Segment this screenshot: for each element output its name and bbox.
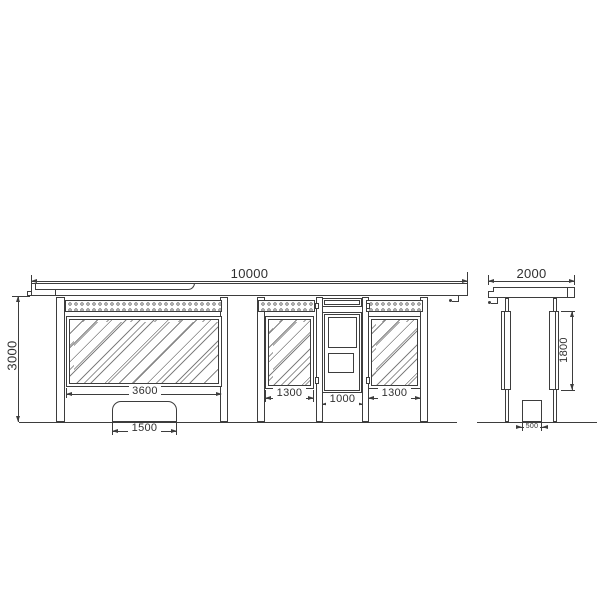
dim-label-left-window: 1300 (273, 388, 306, 400)
ground-line-front (19, 422, 457, 423)
roof-side-drain-dot (488, 301, 491, 304)
roof-side-left-step (488, 287, 494, 292)
dim-arrow (16, 296, 20, 302)
door-window-lower (328, 353, 354, 373)
dim-label-panel-height: 1800 (559, 332, 571, 368)
door-window-upper (328, 317, 357, 348)
dim-arrow (171, 429, 177, 433)
roof-side-inner-line (567, 287, 568, 298)
door-hinge-top-left (315, 303, 319, 309)
dim-arrow (542, 425, 548, 429)
roof-front-upper-band (35, 283, 195, 290)
dim-label-overall-width: 10000 (31, 267, 468, 281)
glass-panel-right (371, 319, 418, 386)
door-hinge-bottom-right (366, 377, 370, 384)
perforated-strip-main (65, 300, 222, 312)
dim-arrow (570, 384, 574, 390)
roof-side-drain-hook (491, 298, 498, 304)
side-panel-front-line (504, 311, 505, 390)
dim-label-main-window: 3600 (129, 386, 161, 398)
dim-label-overall-height: 3000 (6, 338, 19, 374)
dim-label-bench: 1500 (128, 423, 161, 435)
roof-front-drain-dot (449, 299, 452, 302)
dim-arrow (66, 392, 72, 396)
signage-board-inner (324, 300, 360, 305)
bench-front (112, 401, 177, 422)
dim-arrow (368, 396, 374, 400)
post-right-end (420, 297, 428, 422)
door-hinge-bottom-left (315, 377, 319, 384)
drawing-canvas: 10000 3000 3600 1500 (0, 0, 600, 600)
dim-arrow (516, 425, 522, 429)
dim-arrow (16, 416, 20, 422)
bench-side (522, 400, 542, 422)
dim-arrow (216, 392, 222, 396)
glass-panel-left (268, 319, 311, 386)
perforated-strip-left (258, 300, 315, 312)
dim-arrow (570, 311, 574, 317)
glass-panel-main (69, 319, 219, 384)
dim-arrow (265, 396, 271, 400)
dim-label-right-window: 1300 (378, 388, 411, 400)
roof-front-drain-hook (452, 296, 459, 302)
dim-arrow (308, 396, 314, 400)
roof-front-band-tick (55, 290, 56, 296)
side-panel-front (501, 311, 511, 390)
post-2 (257, 297, 265, 422)
dim-label-bench-depth: 500 (524, 423, 540, 430)
side-panel-back-line (555, 311, 556, 390)
dim-label-door: 1000 (326, 394, 359, 406)
perforated-strip-right (366, 300, 423, 312)
dim-label-depth: 2000 (488, 267, 575, 281)
dim-arrow (415, 396, 421, 400)
roof-side (488, 287, 575, 298)
dim-arrow (112, 429, 118, 433)
post-left-end (56, 297, 65, 422)
door-hinge-top-right (366, 303, 370, 309)
